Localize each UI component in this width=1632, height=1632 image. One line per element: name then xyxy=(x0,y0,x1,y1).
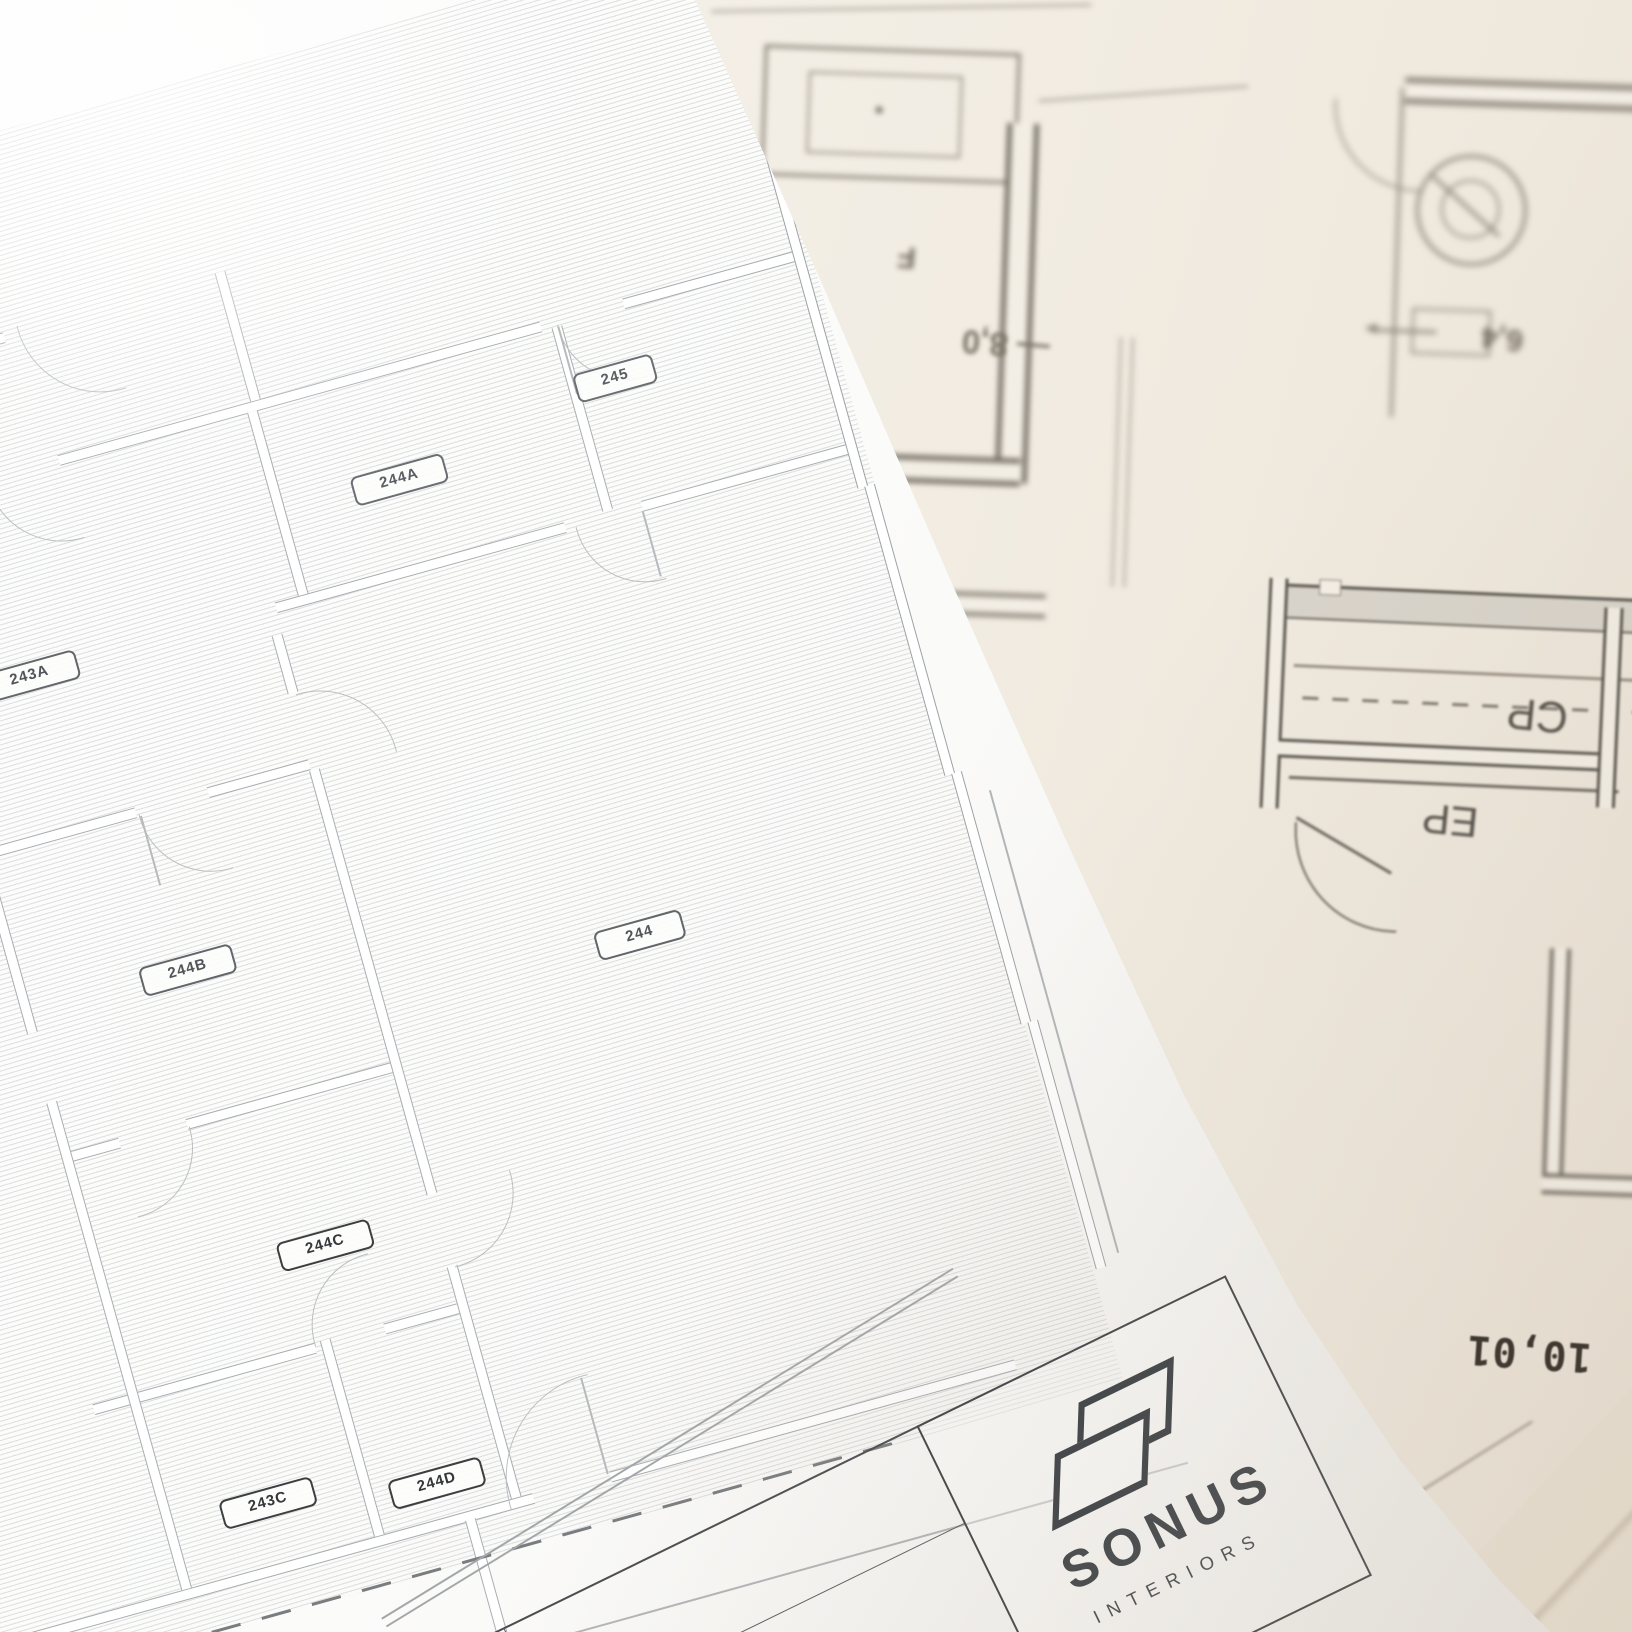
upside-down-label-cp: CP xyxy=(1505,687,1571,743)
line xyxy=(1039,85,1249,102)
wall-notch xyxy=(1319,579,1342,596)
wall-segment xyxy=(1260,578,1289,809)
wall-segment xyxy=(1405,77,1632,111)
photo-of-blueprints: F 6,4 CP EP 10,01 — 8,0 xyxy=(0,0,1632,1632)
wall-segment xyxy=(1596,607,1624,808)
arrowhead xyxy=(1365,323,1377,333)
upside-down-dimension-64: 6,4 xyxy=(1480,319,1525,357)
wall-segment xyxy=(1542,1173,1632,1198)
upside-down-dimension-1001: 10,01 xyxy=(1411,1322,1594,1380)
title-block-divider xyxy=(503,1627,688,1632)
line xyxy=(711,4,1091,13)
wall-segment xyxy=(1111,337,1134,587)
wall-segment xyxy=(1278,738,1609,771)
upside-down-letter-f: F xyxy=(896,239,917,274)
background-sheet-corner-walls xyxy=(1494,927,1632,1264)
line xyxy=(1289,776,1619,793)
upside-down-label-ep: EP xyxy=(1420,793,1480,846)
background-sheet-fixture-drawing: 6,4 xyxy=(1313,15,1632,456)
table-symbol xyxy=(806,71,963,158)
counter-front-line xyxy=(1294,664,1632,686)
dashed-counter-line xyxy=(1302,696,1632,717)
wall-segment xyxy=(1542,948,1571,1179)
background-sheet-cabinet-drawing: CP EP xyxy=(1141,528,1632,982)
